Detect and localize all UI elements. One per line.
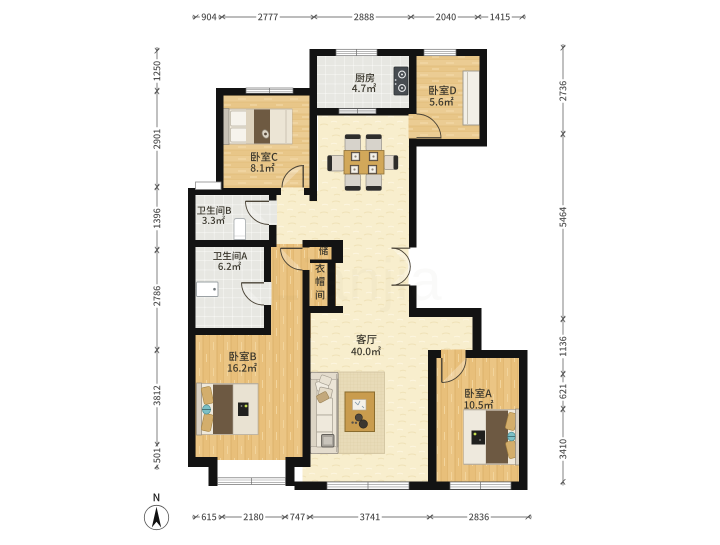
svg-text:Lianjia: Lianjia	[268, 248, 443, 313]
